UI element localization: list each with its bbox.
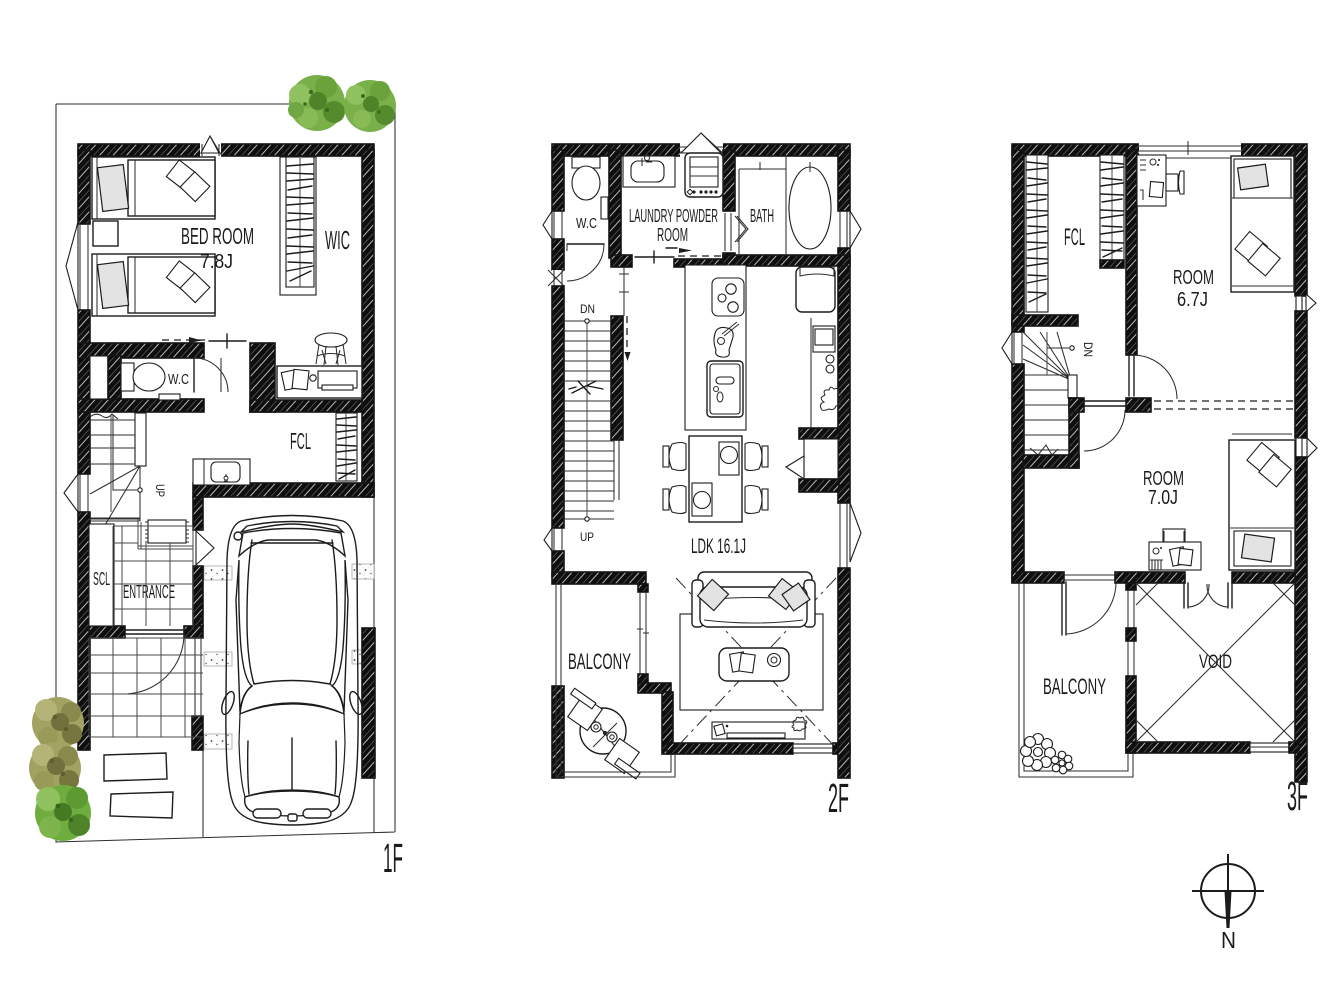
svg-text:2F: 2F — [828, 775, 849, 821]
svg-text:BALCONY: BALCONY — [568, 649, 631, 674]
svg-text:BED ROOM: BED ROOM — [181, 223, 254, 249]
svg-text:7.8J: 7.8J — [200, 251, 233, 273]
svg-text:SCL: SCL — [93, 569, 110, 589]
svg-text:BALCONY: BALCONY — [1043, 674, 1106, 699]
svg-text:N: N — [1221, 927, 1236, 953]
svg-text:W.C: W.C — [168, 371, 189, 388]
svg-text:ROOM: ROOM — [657, 225, 688, 245]
svg-text:WIC: WIC — [325, 225, 350, 255]
svg-text:ROOM: ROOM — [1173, 267, 1214, 289]
svg-text:6.7J: 6.7J — [1177, 289, 1208, 311]
svg-text:7.0J: 7.0J — [1148, 487, 1178, 509]
svg-text:DN: DN — [1081, 342, 1095, 357]
svg-text:LAUNDRY POWDER: LAUNDRY POWDER — [629, 206, 718, 226]
svg-text:ENTRANCE: ENTRANCE — [123, 582, 175, 602]
svg-text:1F: 1F — [383, 835, 403, 881]
svg-text:3F: 3F — [1287, 773, 1308, 819]
svg-text:DN: DN — [580, 302, 595, 316]
svg-text:BATH: BATH — [750, 206, 774, 226]
svg-text:FCL: FCL — [1064, 224, 1085, 251]
svg-text:FCL: FCL — [290, 428, 311, 454]
svg-text:W.C: W.C — [576, 215, 597, 232]
svg-text:LDK 16.1J: LDK 16.1J — [691, 535, 746, 558]
svg-text:UP: UP — [580, 530, 594, 544]
svg-text:VOID: VOID — [1199, 652, 1232, 673]
svg-text:UP: UP — [153, 484, 167, 497]
